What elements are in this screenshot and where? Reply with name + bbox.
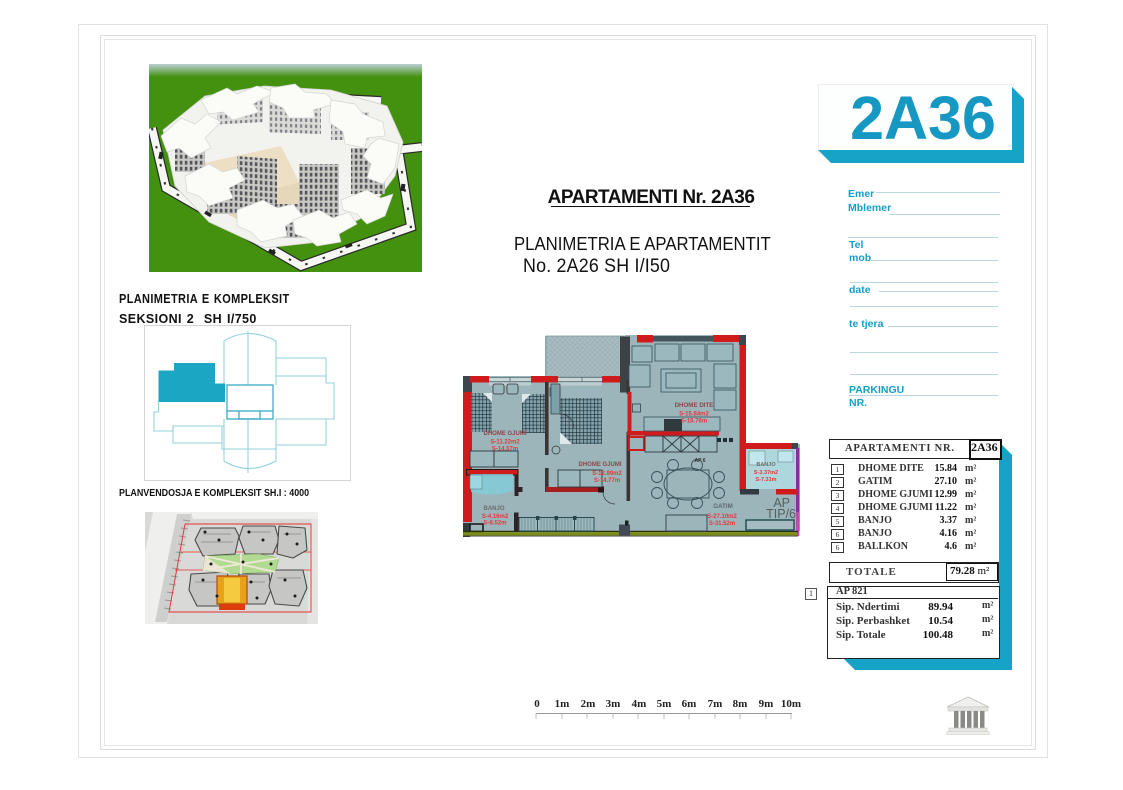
svg-text:S-16.76m: S-16.76m: [681, 419, 707, 425]
svg-text:5m: 5m: [657, 698, 672, 710]
svg-text:S-15.84m2: S-15.84m2: [679, 412, 709, 418]
svg-text:BANJO: BANJO: [483, 506, 504, 512]
svg-text:BANJO: BANJO: [756, 462, 776, 468]
svg-text:DHOME DITE: DHOME DITE: [675, 402, 714, 409]
svg-text:DHOME GJUMI: DHOME GJUMI: [578, 462, 621, 468]
svg-text:0: 0: [534, 698, 540, 710]
svg-text:S-31.52m: S-31.52m: [709, 521, 735, 527]
svg-text:S-14.77m: S-14.77m: [594, 478, 620, 484]
svg-text:10m: 10m: [781, 698, 801, 710]
svg-text:TIP/6: TIP/6: [766, 507, 796, 521]
svg-text:S-14.57m: S-14.57m: [492, 447, 518, 453]
svg-text:7m: 7m: [708, 698, 723, 710]
svg-text:S-27.10m2: S-27.10m2: [707, 514, 737, 520]
svg-text:GATIM: GATIM: [713, 503, 732, 510]
svg-text:S-3.37m2: S-3.37m2: [754, 470, 778, 476]
svg-text:8m: 8m: [733, 698, 748, 710]
svg-text:S-8.52m: S-8.52m: [483, 521, 506, 527]
svg-text:1m: 1m: [555, 698, 570, 710]
svg-text:6m: 6m: [682, 698, 697, 710]
svg-text:S-7.31m: S-7.31m: [755, 477, 776, 483]
svg-text:4m: 4m: [632, 698, 647, 710]
svg-text:2m: 2m: [581, 698, 596, 710]
svg-text:S-12.99m2: S-12.99m2: [592, 471, 622, 477]
svg-text:9m: 9m: [759, 698, 774, 710]
svg-text:3m: 3m: [606, 698, 621, 710]
svg-text:AP 6: AP 6: [694, 458, 705, 464]
svg-text:DHOME GJUMI: DHOME GJUMI: [483, 431, 526, 437]
svg-text:S-4.16m2: S-4.16m2: [482, 514, 509, 520]
svg-text:S-11.22m2: S-11.22m2: [490, 440, 520, 446]
